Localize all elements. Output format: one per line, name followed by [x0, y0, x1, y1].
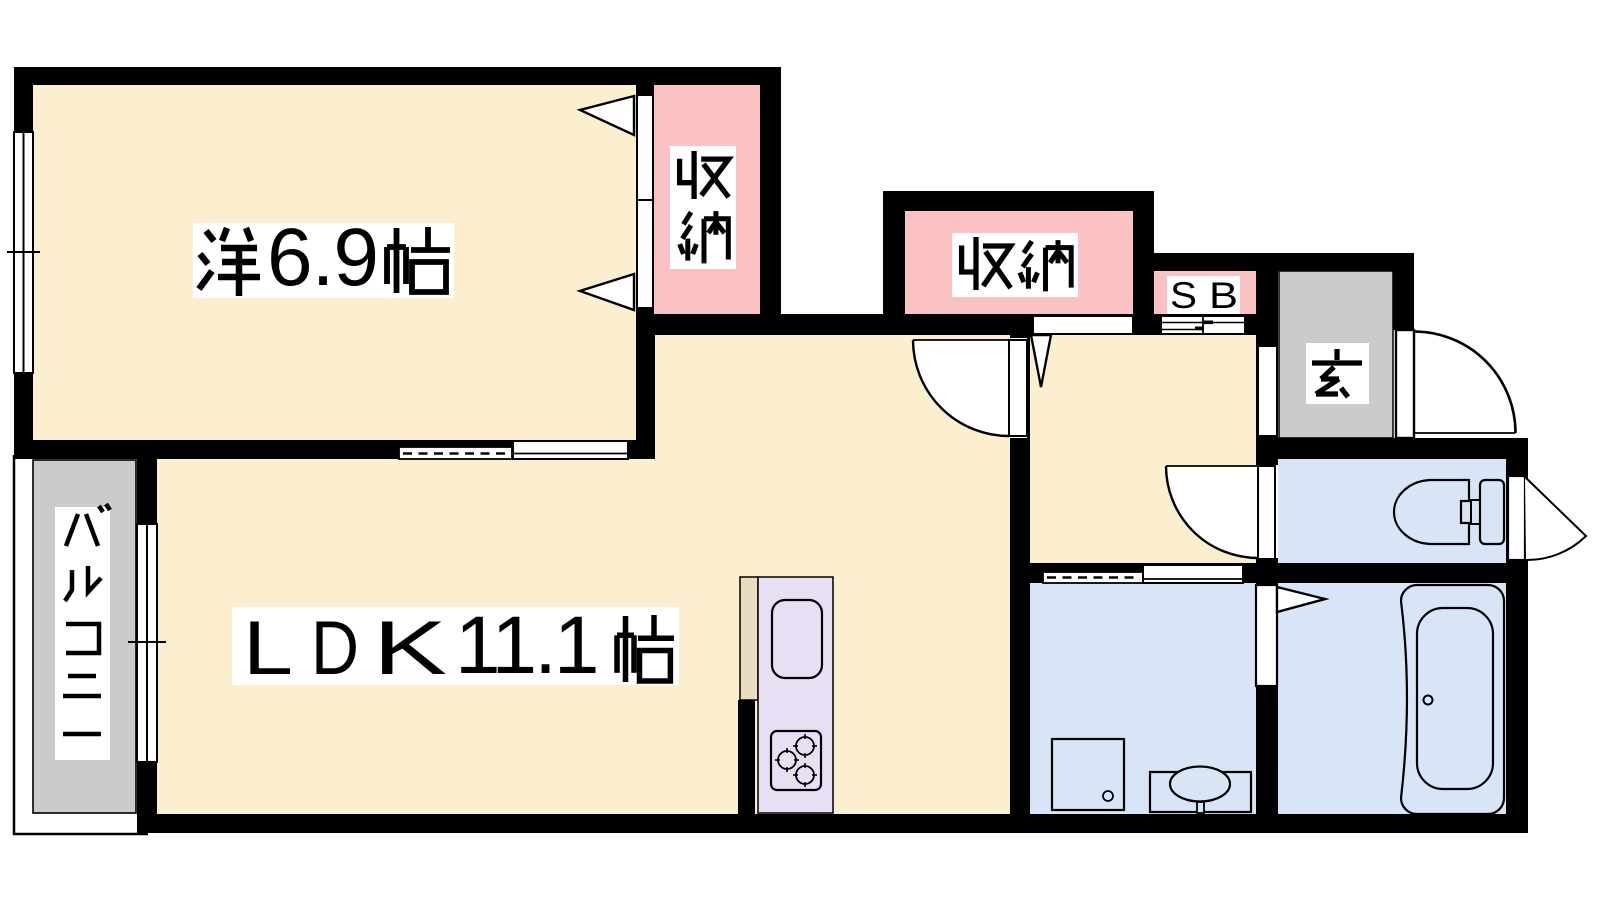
svg-text:11.1: 11.1 [455, 600, 597, 691]
svg-text:K: K [373, 606, 447, 691]
svg-text:6.9: 6.9 [267, 212, 378, 303]
svg-text:D: D [311, 606, 359, 691]
svg-text:L: L [243, 606, 293, 691]
svg-text:B: B [1209, 275, 1238, 316]
svg-text:S: S [1170, 275, 1197, 316]
